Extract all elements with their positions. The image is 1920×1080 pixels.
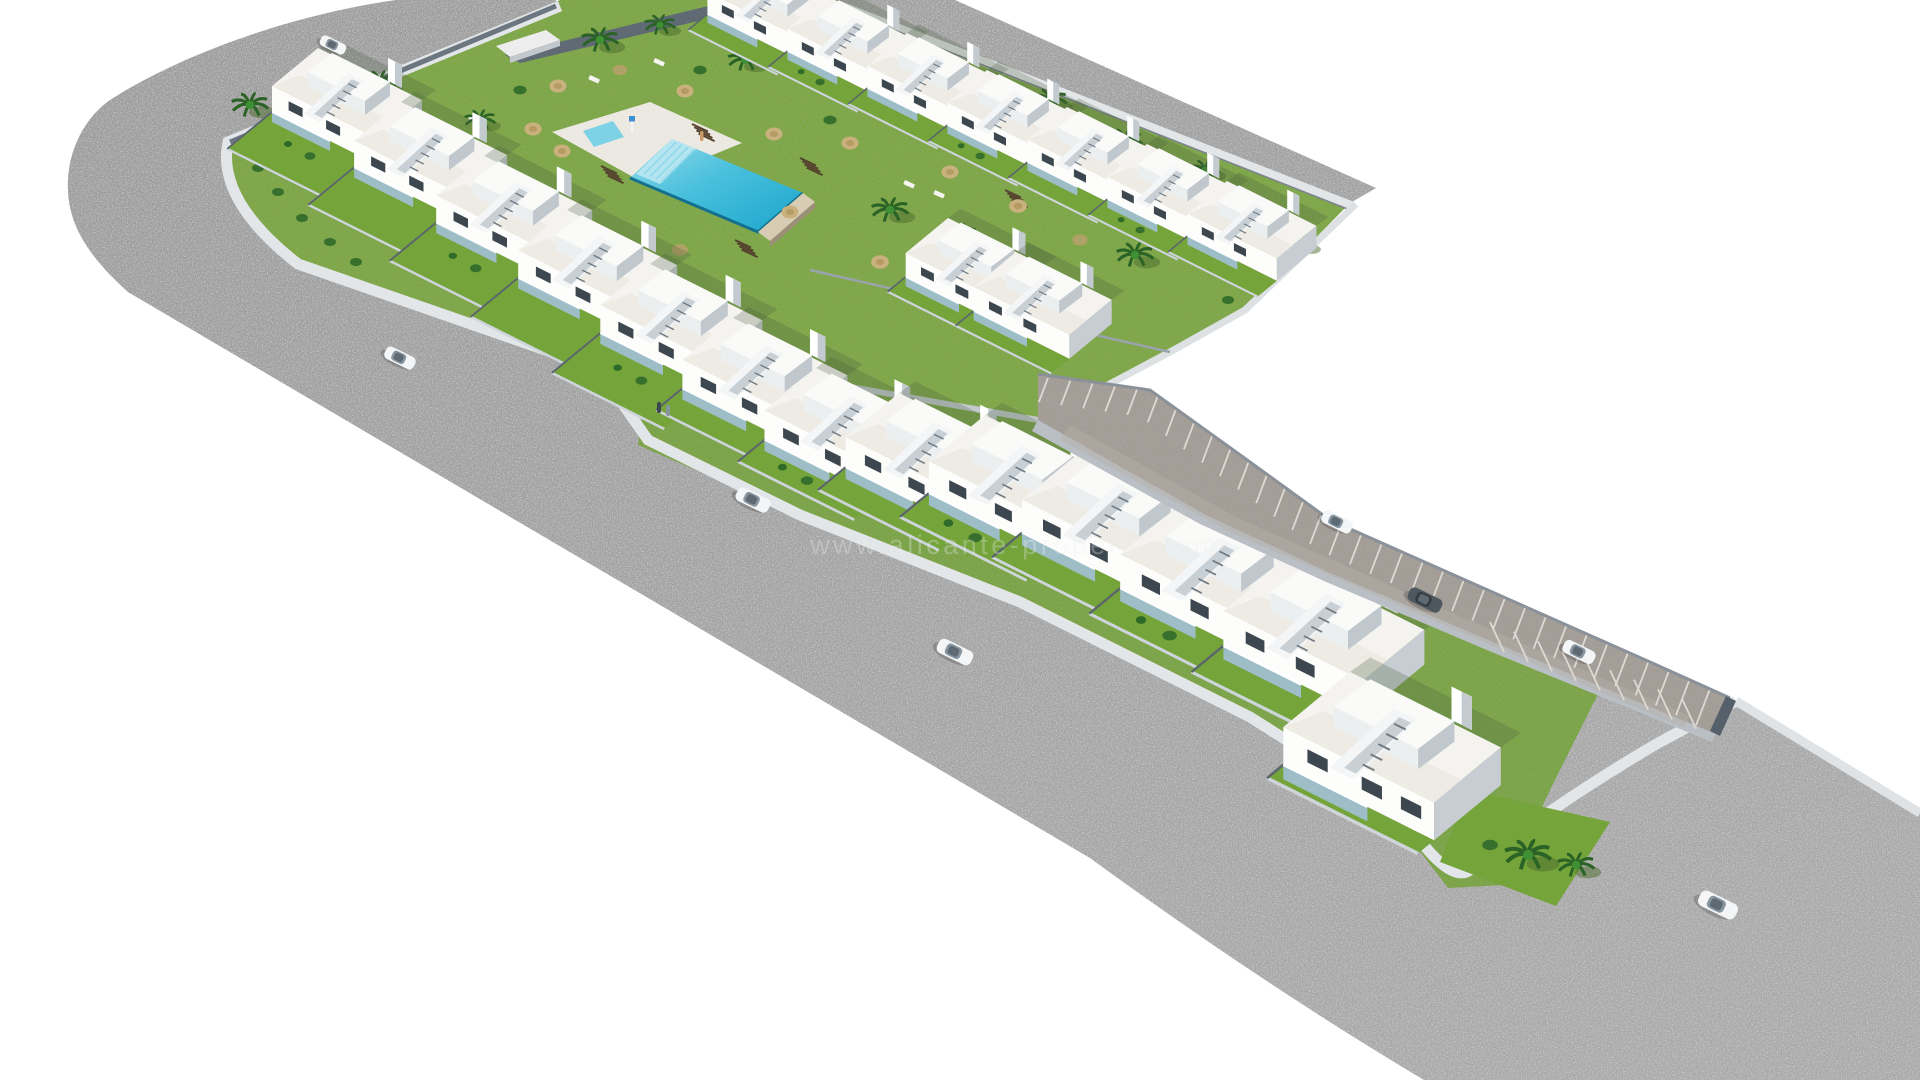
svg-text:www.alicante-property.com: www.alicante-property.com bbox=[809, 530, 1220, 560]
